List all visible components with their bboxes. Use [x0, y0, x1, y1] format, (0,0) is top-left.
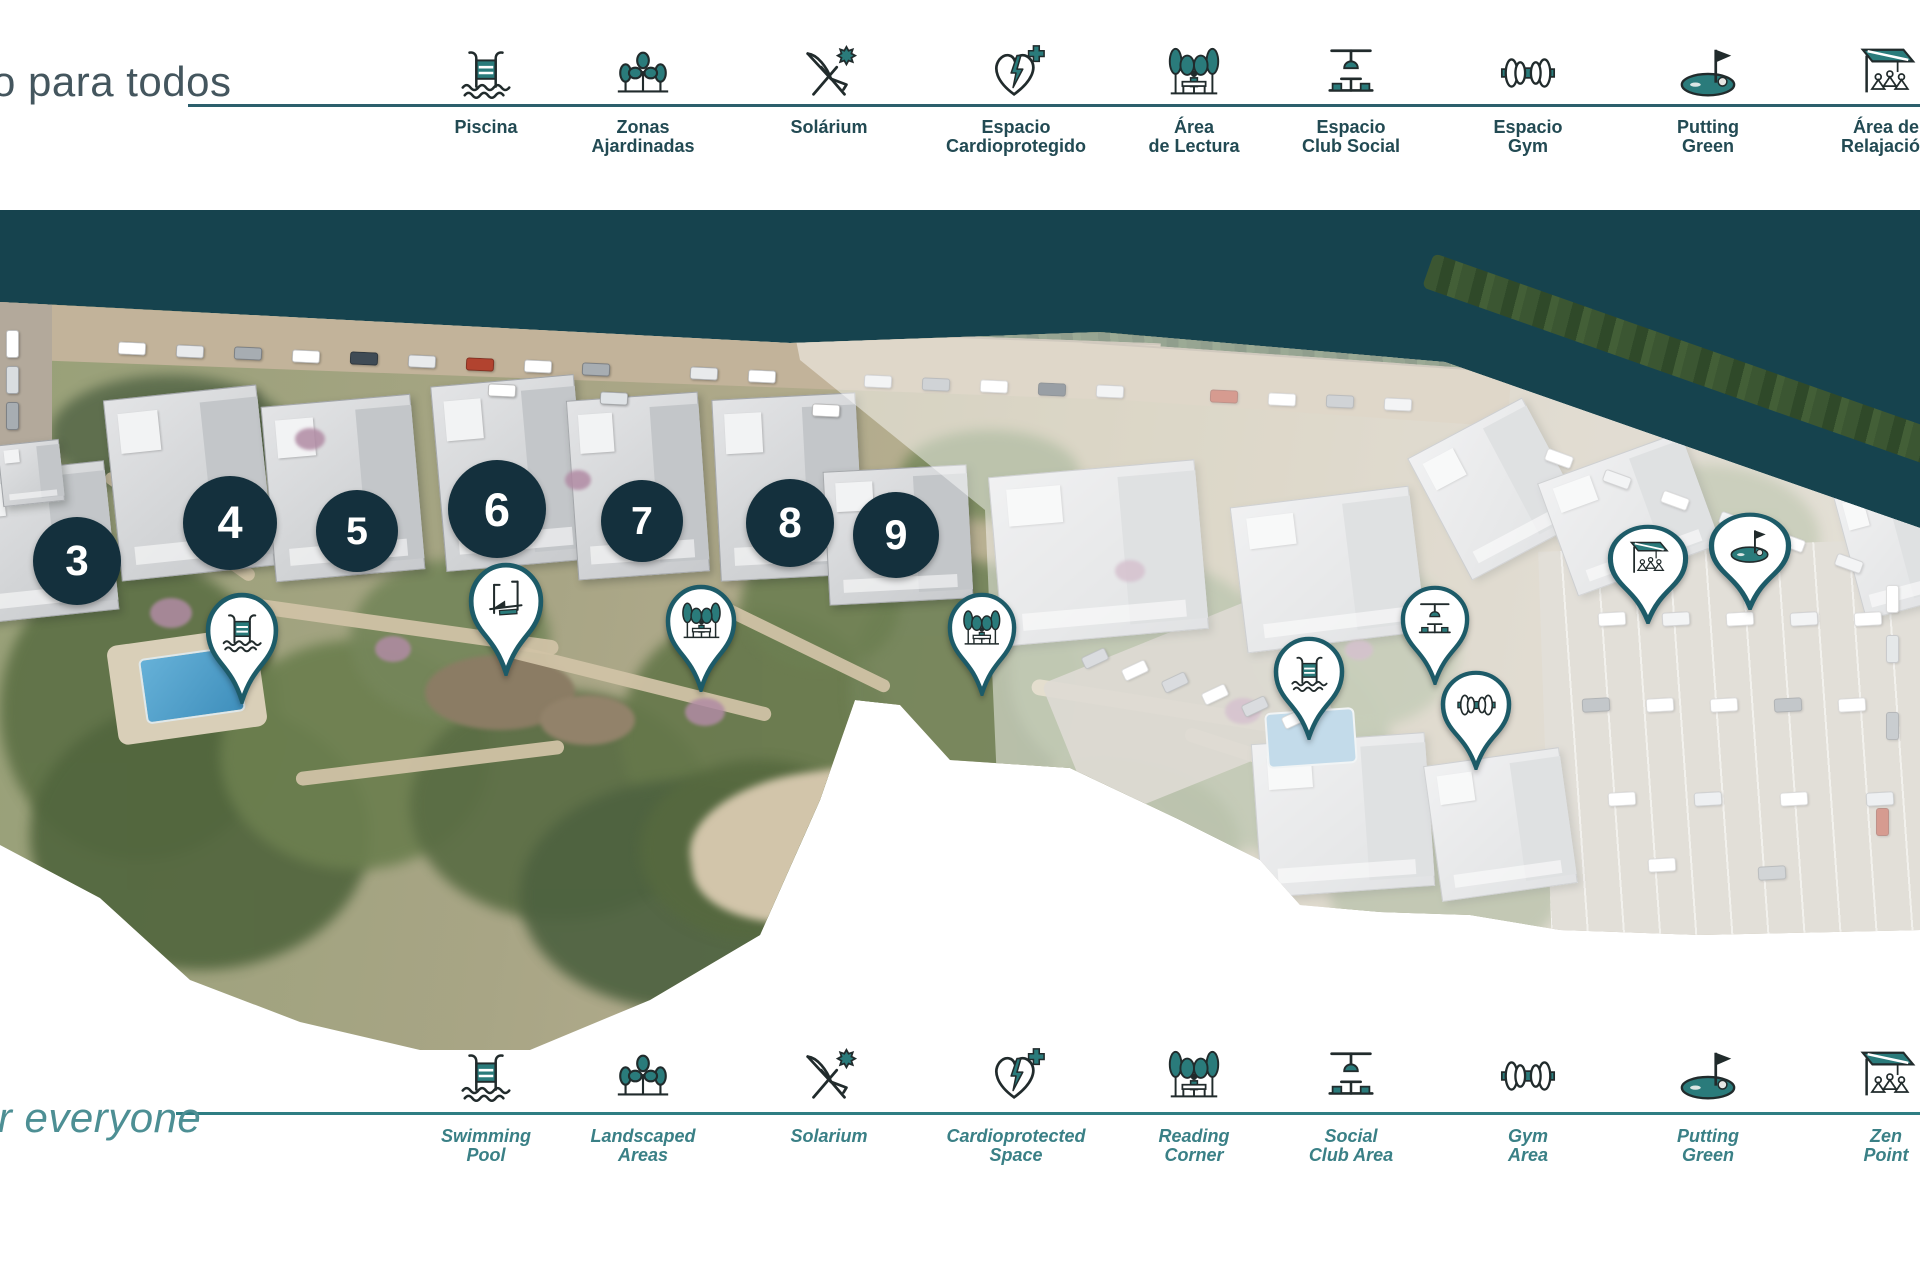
amenity-label: Áreade Lectura	[1104, 104, 1284, 156]
amenity-es-putting-green: PuttingGreen	[1618, 38, 1798, 156]
pin-icon	[1411, 598, 1459, 642]
amenity-icon	[553, 1041, 733, 1107]
amenity-icon	[1796, 1041, 1920, 1107]
amenity-label: ZenPoint	[1796, 1107, 1920, 1165]
amenity-es-piscina: Piscina	[396, 38, 576, 137]
amenity-label: EspacioGym	[1438, 104, 1618, 156]
pin-icon	[480, 577, 532, 627]
amenity-icon	[739, 1041, 919, 1107]
amenity-en-cardioprotected-space: CardioprotectedSpace	[926, 1041, 1106, 1165]
map-pin-putting	[1708, 512, 1792, 610]
amenity-icon	[1796, 38, 1920, 104]
amenity-icon	[1104, 38, 1284, 104]
amenity-es-zonas-ajardinadas: ZonasAjardinadas	[553, 38, 733, 156]
amenity-label: CardioprotectedSpace	[926, 1107, 1106, 1165]
building-number-3: 3	[33, 517, 121, 605]
building-number-9: 9	[853, 492, 939, 578]
masterplan-infographic: { "palette": { "teal_band": "#16434e", "…	[0, 0, 1920, 1280]
map-pin-solarium	[468, 562, 544, 676]
building-number-label: 7	[631, 499, 653, 544]
map-pin-zen	[1607, 524, 1689, 624]
amenity-label: SocialClub Area	[1261, 1107, 1441, 1165]
amenity-es-espacio-cardioprotegido: EspacioCardioprotegido	[926, 38, 1106, 156]
pin-icon	[1452, 683, 1501, 727]
amenity-icon	[1261, 38, 1441, 104]
amenity-label: SwimmingPool	[396, 1107, 576, 1165]
amenity-en-gym-area: GymArea	[1438, 1041, 1618, 1165]
amenity-en-solarium: Solarium	[739, 1041, 919, 1146]
building-number-label: 9	[885, 512, 908, 559]
amenity-es-espacio-gym: EspacioGym	[1438, 38, 1618, 156]
building-number-6: 6	[448, 460, 546, 558]
amenity-en-swimming-pool: SwimmingPool	[396, 1041, 576, 1165]
pin-icon	[1285, 650, 1334, 696]
map-pin-reading-1	[665, 584, 737, 692]
pin-icon	[677, 598, 726, 646]
pin-icon	[958, 606, 1006, 652]
amenity-icon	[1261, 1041, 1441, 1107]
map-pin-gym	[1440, 670, 1512, 770]
building-number-label: 4	[217, 497, 242, 549]
amenity-en-social-club-area: SocialClub Area	[1261, 1041, 1441, 1165]
amenity-label: EspacioCardioprotegido	[926, 104, 1106, 156]
amenity-icon	[1618, 38, 1798, 104]
building-number-8: 8	[746, 479, 834, 567]
section-title-en: or everyone	[0, 1094, 201, 1142]
amenity-icon	[926, 38, 1106, 104]
amenity-en-reading-corner: ReadingCorner	[1104, 1041, 1284, 1165]
amenity-label: ReadingCorner	[1104, 1107, 1284, 1165]
amenity-icon	[1438, 38, 1618, 104]
building-number-4: 4	[183, 476, 277, 570]
amenity-icon	[553, 38, 733, 104]
amenity-label: Solarium	[739, 1107, 919, 1146]
amenity-es-area-de-relajacion: Área deRelajación	[1796, 38, 1920, 156]
amenity-icon	[396, 38, 576, 104]
amenity-es-solarium: Solárium	[739, 38, 919, 137]
amenity-en-zen-point: ZenPoint	[1796, 1041, 1920, 1165]
building-number-label: 6	[484, 482, 510, 537]
amenity-icon	[396, 1041, 576, 1107]
building-number-label: 3	[65, 537, 89, 585]
building-number-7: 7	[601, 480, 683, 562]
amenity-icon	[1104, 1041, 1284, 1107]
amenity-label: PuttingGreen	[1618, 104, 1798, 156]
amenity-es-espacio-club-social: EspacioClub Social	[1261, 38, 1441, 156]
amenity-label: PuttingGreen	[1618, 1107, 1798, 1165]
amenity-label: ZonasAjardinadas	[553, 104, 733, 156]
pin-icon	[1721, 525, 1778, 568]
amenity-icon	[1438, 1041, 1618, 1107]
amenity-label: Piscina	[396, 104, 576, 137]
building-number-label: 8	[778, 499, 802, 547]
map-pin-pool-2	[1273, 636, 1345, 740]
pin-icon	[1620, 537, 1676, 581]
amenity-en-putting-green: PuttingGreen	[1618, 1041, 1798, 1165]
amenity-icon	[739, 38, 919, 104]
amenity-label: Solárium	[739, 104, 919, 137]
amenity-es-area-de-lectura: Áreade Lectura	[1104, 38, 1284, 156]
amenity-en-landscaped-areas: LandscapedAreas	[553, 1041, 733, 1165]
section-title-es: o para todos	[0, 58, 232, 106]
map-pin-reading-2	[947, 592, 1017, 696]
amenity-icon	[926, 1041, 1106, 1107]
building-number-label: 5	[346, 509, 368, 554]
amenity-label: Área deRelajación	[1796, 104, 1920, 156]
building-number-5: 5	[316, 490, 398, 572]
pin-icon	[217, 607, 267, 656]
amenity-label: EspacioClub Social	[1261, 104, 1441, 156]
amenity-label: LandscapedAreas	[553, 1107, 733, 1165]
amenity-icon	[1618, 1041, 1798, 1107]
amenity-label: GymArea	[1438, 1107, 1618, 1165]
map-pin-pool-1	[205, 592, 279, 704]
